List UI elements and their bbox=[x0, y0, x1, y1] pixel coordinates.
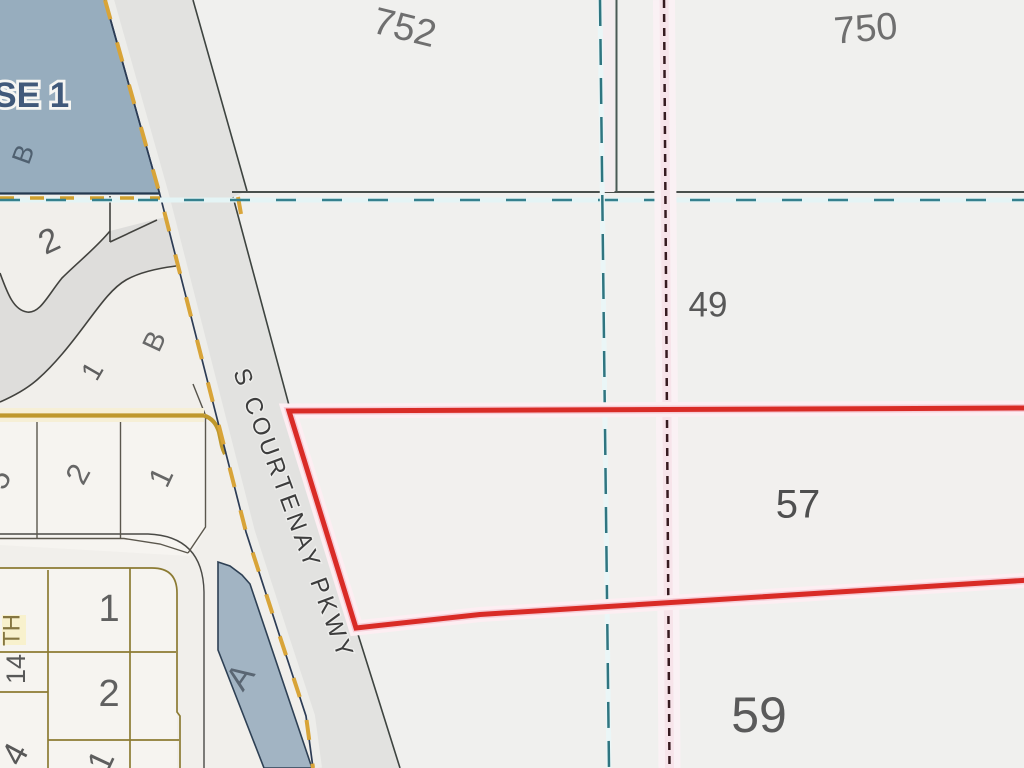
svg-text:49: 49 bbox=[689, 285, 728, 324]
svg-text:57: 57 bbox=[776, 483, 821, 527]
svg-text:1: 1 bbox=[98, 588, 119, 630]
svg-text:14: 14 bbox=[1, 654, 31, 684]
svg-text:59: 59 bbox=[731, 687, 787, 743]
svg-text:2: 2 bbox=[98, 673, 119, 715]
svg-text:TH: TH bbox=[0, 614, 25, 646]
svg-text:750: 750 bbox=[832, 5, 899, 52]
svg-text:ASE 1: ASE 1 bbox=[0, 76, 69, 115]
